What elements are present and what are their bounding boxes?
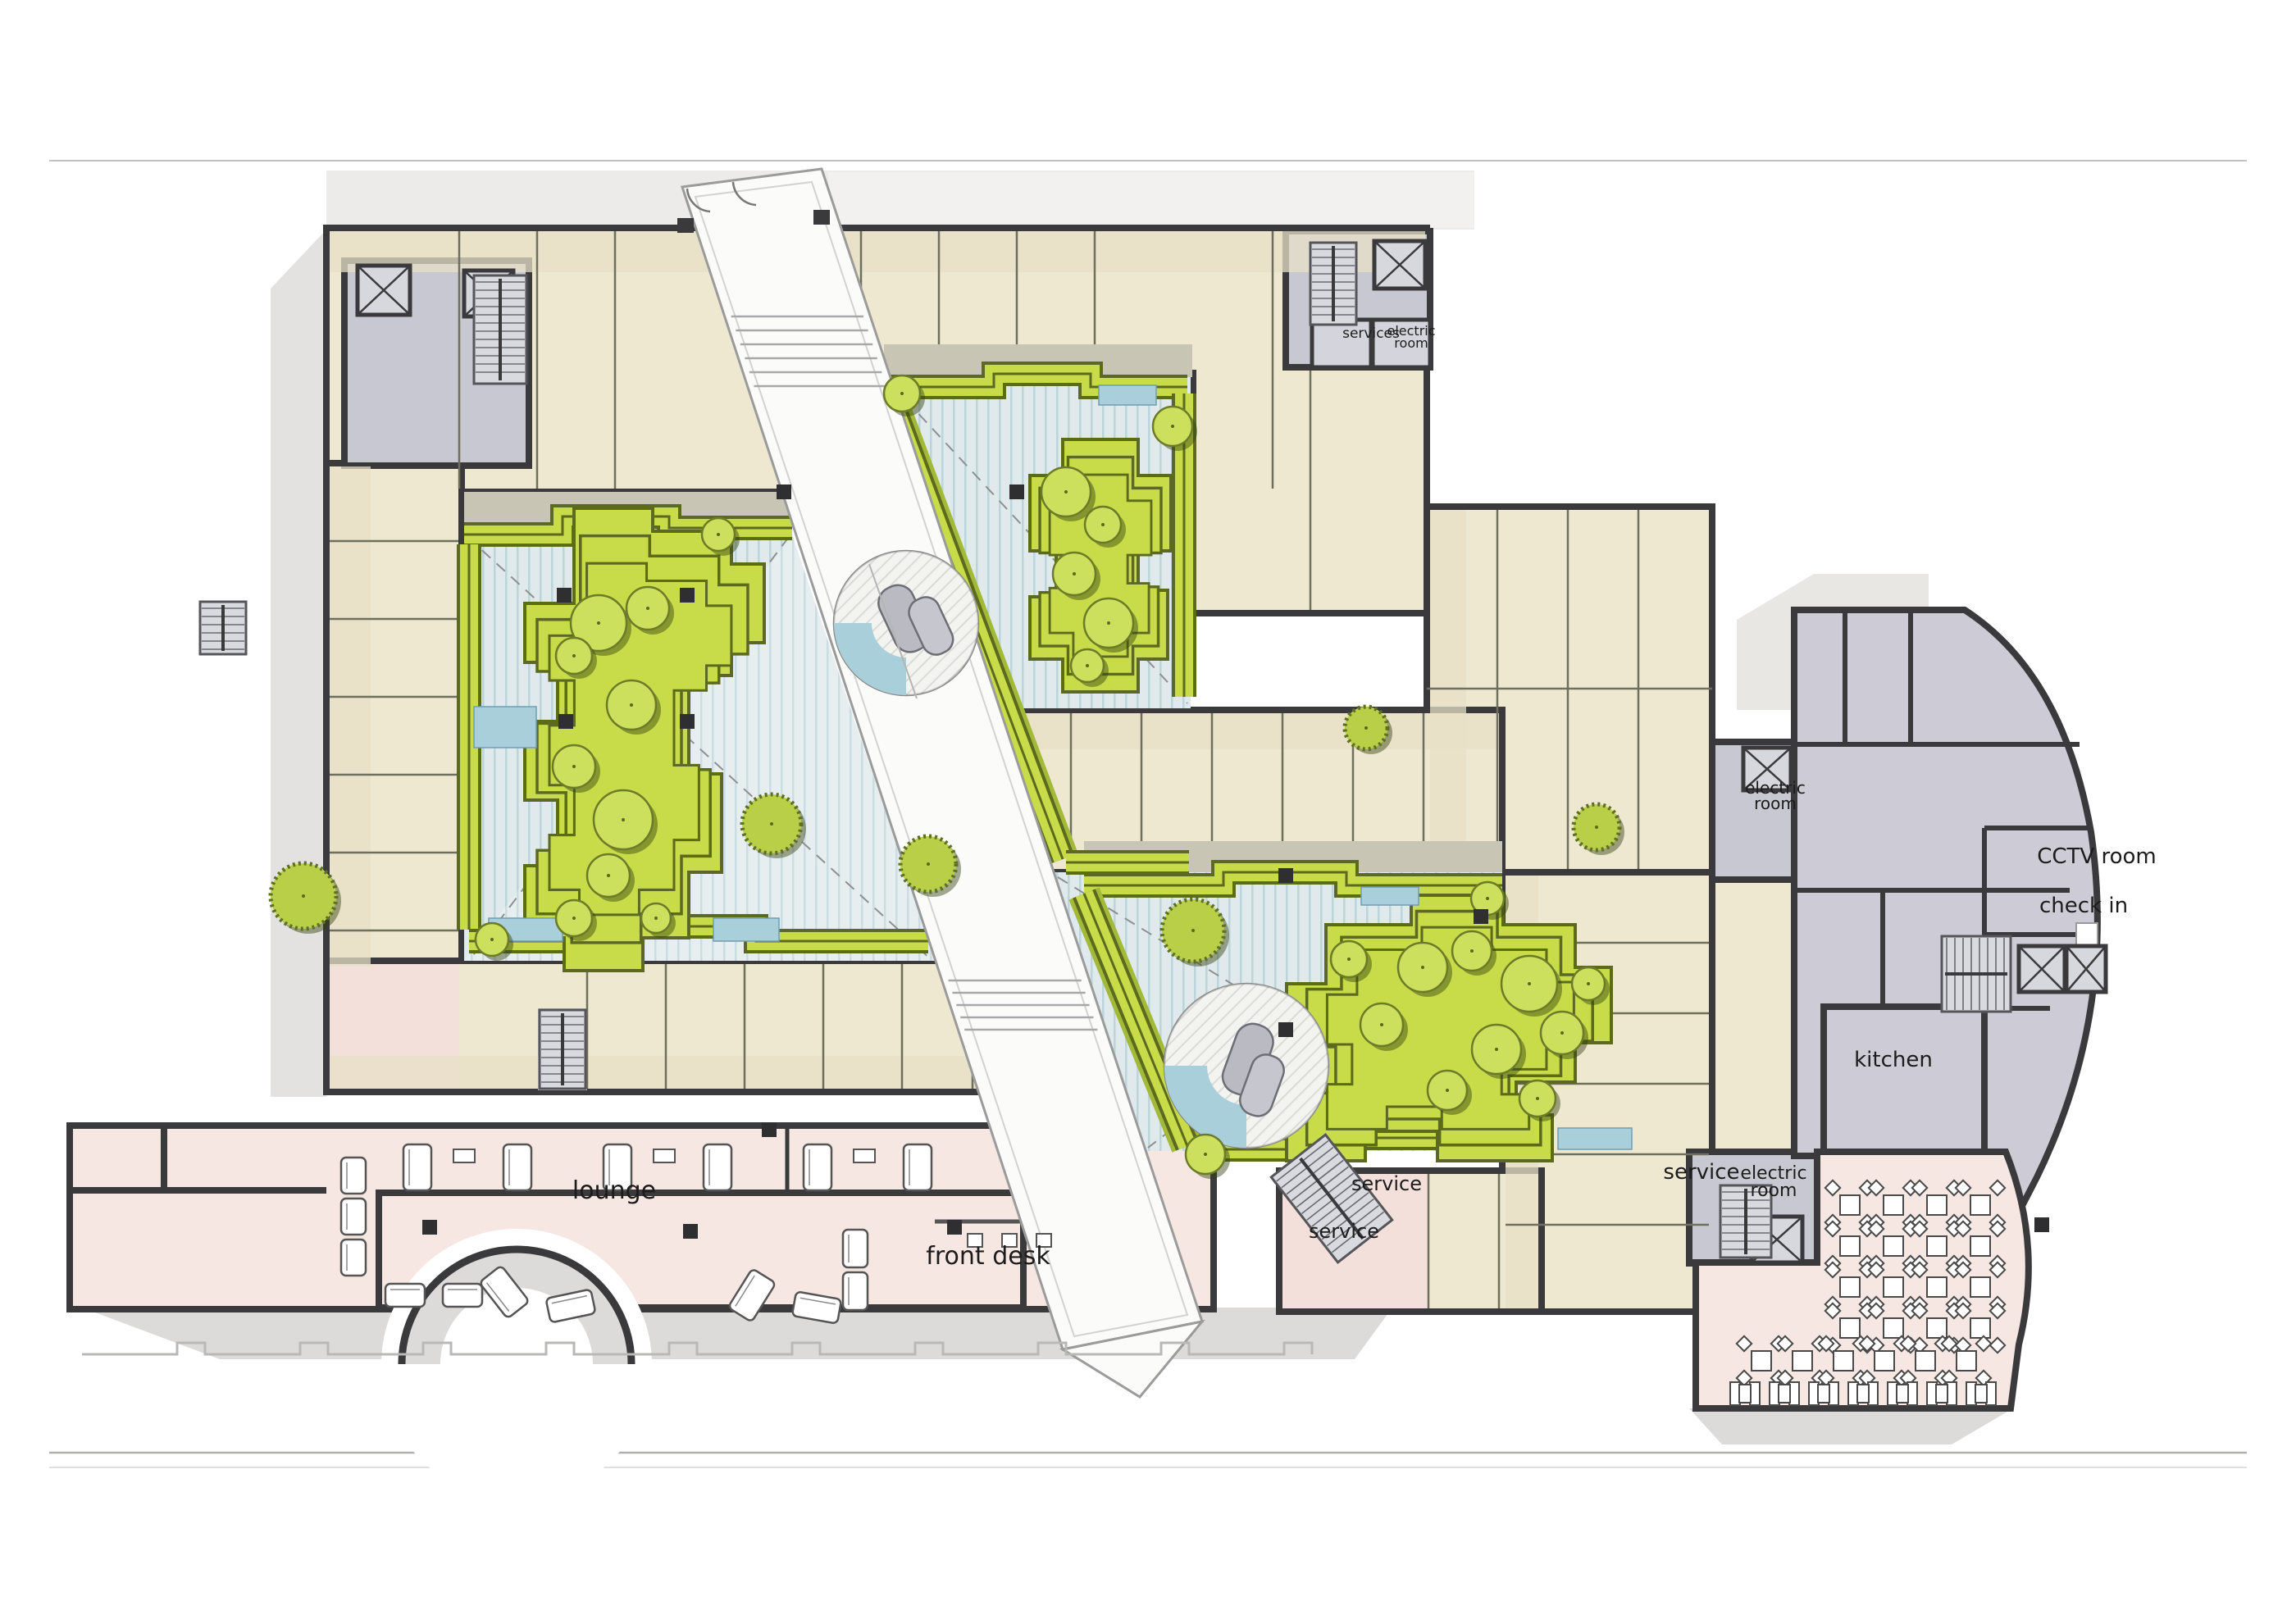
column [762, 1122, 777, 1137]
label-cctv-room: CCTV room [2037, 844, 2157, 869]
tree-center [1171, 425, 1174, 428]
sofa [704, 1144, 731, 1190]
booth-table [1730, 1382, 1760, 1405]
zone-east-col-rooms [1712, 880, 1794, 1152]
label-electric-room-se: electricroom [1740, 1163, 1806, 1201]
tree-center [1470, 949, 1474, 953]
pool [1361, 887, 1419, 905]
bath-strip-north [330, 231, 1425, 272]
column [947, 1220, 962, 1235]
tree-center [1064, 490, 1068, 494]
label-check-in: check in [2039, 894, 2128, 918]
column [558, 714, 573, 729]
tree-center [1347, 958, 1351, 961]
tree-center [1380, 1023, 1383, 1026]
stair [540, 1010, 585, 1089]
site-southeast-band [1689, 1408, 2013, 1444]
tree-center [1107, 621, 1110, 625]
tree-center [302, 894, 305, 898]
booth-table [1966, 1382, 1996, 1405]
bath-strip-middle [330, 1056, 1035, 1089]
tree-center [597, 621, 600, 625]
floor-plan-page: loungefront deskserviceserviceserviceele… [0, 0, 2296, 1624]
elevator-shaft [2066, 946, 2106, 992]
booth-table [1770, 1382, 1799, 1405]
tree-center [654, 917, 658, 920]
column [2034, 1217, 2049, 1232]
tree-center [717, 533, 720, 536]
elevator-shaft [358, 266, 410, 315]
tree-center [572, 654, 576, 657]
column [557, 588, 572, 603]
sofa [341, 1158, 366, 1194]
tree-center [1421, 966, 1424, 969]
column [680, 588, 695, 603]
site-top-band-light [828, 172, 1474, 228]
sofa [843, 1230, 868, 1267]
bath-strip-midband [1004, 713, 1499, 749]
tree-center [1204, 1153, 1207, 1156]
stair [1310, 243, 1356, 325]
elevator-shaft [1374, 241, 1425, 289]
stair [200, 602, 246, 654]
stair [1942, 936, 2011, 1012]
spa-lower [1164, 984, 1328, 1148]
sofa [503, 1144, 531, 1190]
tree-center [1587, 982, 1590, 985]
tree-center [1446, 1089, 1449, 1092]
sofa [804, 1144, 831, 1190]
small-table [854, 1149, 875, 1162]
tree-center [1595, 826, 1598, 829]
column [422, 1220, 437, 1235]
sofa [443, 1284, 482, 1307]
stair [474, 275, 526, 384]
sofa [341, 1240, 366, 1276]
sofa [904, 1144, 932, 1190]
pool [1558, 1128, 1632, 1149]
sofa [385, 1284, 425, 1307]
small-table [453, 1149, 475, 1162]
column [680, 714, 695, 729]
column [1278, 868, 1293, 883]
tree-center [1101, 523, 1105, 526]
tree-center [770, 822, 773, 826]
tree-center [622, 818, 625, 821]
booth-table [1809, 1382, 1838, 1405]
label-service-1: service [1351, 1172, 1422, 1195]
booth-table [1888, 1382, 1917, 1405]
pool [474, 707, 536, 748]
sofa [341, 1199, 366, 1235]
label-service-3: service [1663, 1160, 1739, 1185]
spa-upper [834, 551, 978, 695]
column [1278, 1022, 1293, 1037]
label-lounge: lounge [572, 1176, 656, 1205]
pool [713, 918, 779, 941]
small-table [654, 1149, 675, 1162]
zone-kitchen [1824, 1007, 1984, 1156]
tree-center [572, 917, 576, 920]
tree-center [1536, 1097, 1539, 1100]
tree-center [1560, 1031, 1564, 1035]
tree-center [1528, 982, 1531, 985]
tree-center [572, 765, 576, 768]
wall-stub-1 [677, 218, 694, 233]
tree-center [1073, 572, 1076, 575]
booth-table [1927, 1382, 1957, 1405]
pool [1099, 385, 1156, 405]
label-service-2: service [1309, 1220, 1379, 1243]
floor-plan-canvas: loungefront deskserviceserviceserviceele… [0, 0, 2296, 1624]
label-electric-room-e: electricroom [1745, 778, 1806, 813]
tree-center [607, 874, 610, 877]
lounge-arch [381, 1229, 652, 1499]
column [1474, 909, 1488, 924]
label-kitchen: kitchen [1854, 1048, 1933, 1072]
label-front-desk: front desk [926, 1242, 1050, 1271]
column [1009, 484, 1024, 499]
elevator-shaft [2019, 946, 2065, 992]
label-electric-room-n: electricroom [1387, 323, 1435, 351]
wall-stub-2 [813, 210, 830, 225]
tree-center [1486, 897, 1489, 900]
tree-center [900, 392, 904, 395]
tree-center [1364, 726, 1368, 730]
sofa [403, 1144, 431, 1190]
sofa [843, 1272, 868, 1310]
tree-center [646, 607, 649, 610]
site-left-band [271, 230, 326, 1097]
tree-center [927, 862, 930, 866]
tree-center [1495, 1048, 1498, 1051]
tree-center [1191, 929, 1195, 932]
tree-center [490, 938, 494, 941]
tree-center [630, 703, 633, 707]
column [683, 1224, 698, 1239]
column [777, 484, 791, 499]
booth-table [1848, 1382, 1878, 1405]
tree-center [1086, 664, 1089, 667]
